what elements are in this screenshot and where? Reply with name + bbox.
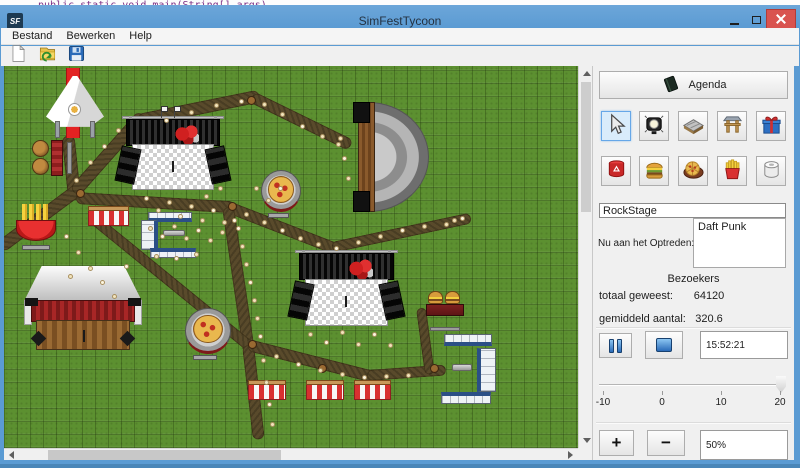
visitor-dot	[74, 178, 79, 183]
visitors-average-label: gemiddeld aantal:	[599, 313, 686, 325]
agenda-book-icon	[661, 74, 681, 97]
fl-flag-part	[161, 106, 168, 112]
agenda-button[interactable]: Agenda	[599, 71, 788, 99]
now-performing-box: Daft Punk	[693, 218, 786, 268]
visitor-dot	[154, 254, 159, 259]
fr-sign-part	[22, 245, 51, 250]
burger-stand-tool-button[interactable]	[639, 156, 669, 186]
window-bottom-border	[0, 460, 800, 468]
waste-bin[interactable]	[248, 340, 257, 349]
svg-part	[721, 158, 744, 181]
visitor-dot	[208, 238, 213, 243]
tp-part	[477, 348, 496, 392]
g-part	[664, 76, 678, 92]
maximize-button[interactable]	[746, 10, 766, 29]
open-file-button[interactable]	[37, 46, 57, 66]
visitor-dot	[262, 102, 267, 107]
visitor-dot	[88, 266, 93, 271]
vertical-scrollbar[interactable]	[578, 66, 592, 448]
pause-button[interactable]	[599, 333, 632, 358]
bg-burger-part	[428, 291, 443, 304]
stage-flag[interactable]	[170, 106, 179, 118]
visitor-dot	[308, 332, 313, 337]
svg-part	[760, 113, 783, 136]
horizontal-scrollbar[interactable]	[4, 448, 578, 460]
new-file-button[interactable]	[8, 46, 28, 66]
am-spk-part	[353, 102, 370, 123]
gift-shop-tool-icon	[760, 113, 783, 139]
toilet-block[interactable]	[441, 334, 497, 404]
pizza-stand-tool-button[interactable]	[678, 156, 708, 186]
kb-keg-part	[32, 158, 49, 175]
visitor-dot	[196, 228, 201, 233]
visitor-dot	[148, 226, 153, 231]
visitor-dot	[340, 372, 345, 377]
pz-sign-part	[268, 213, 289, 218]
visitors-header: Bezoekers	[593, 273, 794, 285]
visitor-dot	[204, 194, 209, 199]
visitor-dot	[200, 218, 205, 223]
stage-name-input[interactable]	[599, 203, 786, 218]
pizza-stand-tool-icon	[682, 158, 705, 184]
fr-bowl-part	[16, 220, 56, 241]
am-spk-part	[353, 191, 370, 212]
visitor-dot	[356, 240, 361, 245]
menu-item-help[interactable]: Help	[122, 29, 159, 43]
visitor-dot	[164, 118, 169, 123]
visitor-dot	[388, 343, 393, 348]
new-file-icon	[9, 44, 28, 68]
ellipse-part	[769, 164, 774, 166]
toilet-tool-button[interactable]	[756, 156, 786, 186]
visitors-total-label: totaal geweest:	[599, 290, 673, 302]
st-mic-part	[345, 296, 347, 307]
sl-stripes-part	[306, 385, 344, 400]
visitor-dot	[220, 230, 225, 235]
visitor-dot	[189, 110, 194, 115]
burger-stand[interactable]	[426, 291, 464, 331]
visitor-dot	[244, 212, 249, 217]
visitor-dot	[280, 228, 285, 233]
st-mic-part	[172, 161, 174, 172]
slider-tickmark	[780, 391, 781, 395]
svg-part	[682, 158, 705, 181]
tp-part	[444, 334, 492, 346]
spotlight-tool-button[interactable]	[639, 111, 669, 141]
spotlight-tool-icon	[643, 113, 666, 139]
title-bar[interactable]: SF SimFestTycoon	[0, 5, 800, 28]
rect-part	[646, 168, 661, 170]
striped-stall[interactable]	[88, 206, 129, 226]
st-drums-part	[175, 124, 199, 144]
visitor-dot	[88, 160, 93, 165]
visitor-dot	[324, 340, 329, 345]
path-part	[646, 163, 661, 167]
path-part	[609, 163, 623, 176]
visitor-dot	[68, 274, 73, 279]
visitors-average-value: 320.6	[679, 313, 739, 325]
visitor-dot	[452, 218, 457, 223]
kb-bench-part	[67, 142, 72, 174]
visitor-dot	[255, 316, 260, 321]
visitor-dot	[320, 134, 325, 139]
sl-stripes-part	[88, 211, 129, 226]
pz-sign-part	[193, 355, 217, 360]
visitor-dot	[444, 222, 449, 227]
stop-button[interactable]	[645, 331, 683, 359]
close-button[interactable]	[766, 9, 796, 29]
striped-stall[interactable]	[354, 380, 391, 400]
stage-platform-tool-button[interactable]	[678, 111, 708, 141]
waste-bin[interactable]	[430, 364, 439, 373]
visitor-dot	[346, 176, 351, 181]
kb-keg-part	[32, 140, 49, 157]
visitor-dot	[254, 186, 259, 191]
pizza-stand[interactable]	[185, 308, 231, 360]
polygon-part	[723, 117, 740, 121]
vertical-scrollbar-thumb[interactable]	[581, 82, 591, 212]
barn-stage[interactable]	[24, 266, 142, 350]
zoom-out-button[interactable]: −	[647, 430, 685, 456]
scroll-left-arrow-icon[interactable]	[9, 451, 14, 459]
menu-item-bestand[interactable]: Bestand	[5, 29, 59, 43]
burger-stand-tool-icon	[643, 158, 666, 184]
svg-part	[67, 44, 86, 63]
visitor-dot	[194, 252, 199, 257]
path-part	[765, 117, 771, 120]
open-file-icon	[38, 44, 57, 68]
svg-part	[605, 113, 628, 136]
close-icon	[776, 14, 786, 24]
rect-part	[724, 124, 739, 126]
circle-part	[649, 120, 658, 129]
tp-part	[141, 220, 158, 250]
visitor-dot	[336, 142, 341, 147]
visitor-dot	[384, 374, 389, 379]
st-curtain-part	[126, 119, 221, 146]
tn-leg-part	[55, 121, 60, 138]
visitor-dot	[252, 298, 257, 303]
toolbar	[1, 46, 799, 66]
svg-part	[760, 158, 783, 181]
visitor-dot	[278, 186, 283, 191]
visitor-dot	[342, 156, 347, 161]
rect-part	[770, 120, 773, 133]
visitor-dot	[160, 234, 165, 239]
path-part	[611, 115, 623, 133]
festival-map-viewport[interactable]	[4, 66, 578, 448]
beer-stand[interactable]	[32, 140, 74, 176]
visitor-dot	[116, 128, 121, 133]
visitor-dot	[214, 103, 219, 108]
visitor-dot	[211, 208, 216, 213]
bn-spk-part	[25, 298, 38, 306]
entrance-gate-tool-icon	[721, 113, 744, 139]
speed-slider-thumb[interactable]	[776, 376, 786, 393]
svg-part	[38, 44, 57, 63]
simfest-tycoon-window: public static void main(String[] args) S…	[0, 0, 800, 468]
separator	[596, 327, 791, 329]
visitor-dot	[102, 144, 107, 149]
slider-tickmark	[721, 391, 722, 395]
toilet-tool-icon	[760, 158, 783, 184]
visitor-dot	[124, 264, 129, 269]
sl-stripes-part	[354, 385, 391, 400]
visitor-dot	[270, 422, 275, 427]
kb-bar-part	[51, 140, 63, 176]
slider-tick-label: 0	[659, 397, 665, 408]
pz-pie-part	[193, 315, 222, 344]
visitor-dot	[64, 234, 69, 239]
visitor-dot	[167, 200, 172, 205]
slider-tickmark	[603, 391, 604, 395]
striped-stall[interactable]	[306, 380, 344, 400]
visitor-dot	[318, 368, 323, 373]
time-field[interactable]	[700, 331, 788, 359]
minimize-icon	[730, 23, 739, 25]
bn-spk-part	[128, 298, 141, 306]
bg-burger-part	[445, 291, 460, 304]
save-file-icon	[67, 44, 86, 68]
am-dome-part	[368, 102, 429, 212]
entrance-tent[interactable]	[46, 76, 104, 138]
tp-part	[441, 392, 491, 404]
svg-part	[682, 113, 705, 136]
visitor-dot	[422, 224, 427, 229]
stop-icon	[656, 338, 672, 352]
main-stage[interactable]	[118, 116, 228, 194]
scroll-up-arrow-icon[interactable]	[583, 71, 591, 76]
visitor-dot	[261, 358, 266, 363]
entrance-gate-tool-button[interactable]	[717, 111, 747, 141]
fl-flag-part	[174, 106, 181, 112]
slider-tickmark	[662, 391, 663, 395]
bn-roof-part	[24, 266, 142, 301]
menu-item-bewerken[interactable]: Bewerken	[59, 29, 122, 43]
control-panel: Agenda Daft Punk Nu aan het Optreden: Be…	[592, 66, 794, 460]
visitor-dot	[296, 362, 301, 367]
tpipe-part	[452, 364, 472, 371]
visitor-dot	[356, 342, 361, 347]
horizontal-scrollbar-thumb[interactable]	[48, 450, 281, 460]
menu-bar: BestandBewerkenHelp	[1, 28, 799, 45]
visitor-dot	[174, 256, 179, 261]
zoom-in-button[interactable]: +	[599, 430, 634, 456]
svg-part	[605, 158, 628, 181]
visitor-dot	[338, 136, 343, 141]
visitor-dot	[232, 218, 237, 223]
agenda-label: Agenda	[689, 79, 727, 91]
rect-part	[71, 55, 81, 61]
visitor-dot	[406, 373, 411, 378]
path-part	[20, 46, 24, 50]
visitor-dot	[239, 99, 244, 104]
scroll-down-arrow-icon[interactable]	[583, 438, 591, 443]
rect-part	[735, 121, 737, 133]
tn-leg-part	[90, 121, 95, 138]
visitor-dot	[76, 250, 81, 255]
visitor-dot	[172, 224, 177, 229]
visitor-dot	[460, 216, 465, 221]
st-curtain-part	[299, 253, 394, 280]
polygon-part	[725, 169, 738, 179]
visitor-dot	[378, 234, 383, 239]
path-part	[771, 117, 777, 120]
visitor-dot	[112, 294, 117, 299]
speed-slider-track[interactable]	[599, 384, 786, 386]
bg-table-part	[426, 304, 464, 316]
fries-stand[interactable]	[16, 204, 56, 250]
visitor-dot	[258, 334, 263, 339]
tn-roof-part	[46, 76, 104, 127]
visitor-dot	[189, 204, 194, 209]
cursor-tool-button[interactable]	[601, 111, 631, 141]
stage-platform-tool-icon	[682, 113, 705, 139]
visitor-dot	[300, 124, 305, 129]
pause-icon	[609, 339, 614, 353]
now-performing-label: Nu aan het Optreden:	[598, 238, 694, 249]
fries-stand-tool-button[interactable]	[717, 156, 747, 186]
amphitheater-stage[interactable]	[353, 102, 429, 212]
tpipe-part	[163, 230, 185, 236]
svg-part	[721, 113, 744, 136]
visitor-dot	[362, 375, 367, 380]
slider-tick-label: 10	[715, 397, 726, 408]
punk-stage[interactable]	[291, 250, 402, 330]
waste-bin[interactable]	[76, 189, 85, 198]
trash-can-tool-icon	[605, 158, 628, 184]
svg-part	[661, 74, 681, 94]
svg-part	[643, 113, 666, 136]
zoom-level-field[interactable]	[700, 430, 788, 460]
visitor-dot	[280, 112, 285, 117]
visitor-dot	[156, 208, 161, 213]
save-file-button[interactable]	[66, 46, 86, 66]
visitor-dot	[340, 330, 345, 335]
visitor-dot	[267, 402, 272, 407]
visitor-dot	[274, 354, 279, 359]
visitor-dot	[334, 246, 339, 251]
separator	[596, 422, 791, 424]
visitor-dot	[100, 280, 105, 285]
visitor-dot	[218, 186, 223, 191]
svg-part	[643, 158, 666, 181]
stage-flag[interactable]	[157, 106, 166, 118]
waste-bin[interactable]	[247, 96, 256, 105]
visitor-dot	[144, 196, 149, 201]
rect-part	[76, 48, 78, 52]
bg-bench-part	[430, 327, 460, 331]
visitor-dot	[262, 220, 267, 225]
pause-icon	[617, 339, 622, 353]
visitor-dot	[316, 242, 321, 247]
visitor-dot	[298, 236, 303, 241]
rect-part	[646, 170, 661, 172]
visitor-dot	[248, 280, 253, 285]
visitor-dot	[400, 228, 405, 233]
visitor-dot	[372, 332, 377, 337]
cursor-tool-icon	[605, 113, 628, 139]
sl-stripes-part	[248, 385, 286, 400]
slider-tick-label: 20	[774, 397, 785, 408]
st-drums-part	[349, 258, 373, 279]
visitor-dot	[244, 262, 249, 267]
rect-part	[651, 131, 656, 134]
visitor-dot	[178, 214, 183, 219]
svg-part	[9, 44, 28, 63]
window-title: SimFestTycoon	[0, 14, 800, 28]
path-part	[646, 175, 661, 178]
waste-bin[interactable]	[228, 202, 237, 211]
toilet-block[interactable]	[141, 212, 198, 260]
bn-mic-part	[83, 330, 85, 342]
visitor-dot	[184, 236, 189, 241]
slider-tick-label: -10	[596, 397, 610, 408]
trash-can-tool-button[interactable]	[601, 156, 631, 186]
rect-part	[726, 121, 728, 133]
visitor-dot	[266, 198, 271, 203]
scrollbar-corner	[578, 448, 592, 460]
visitors-total-value: 64120	[679, 290, 739, 302]
visitor-dot	[222, 220, 227, 225]
maximize-icon	[752, 16, 761, 24]
visitor-dot	[236, 226, 241, 231]
gift-shop-tool-button[interactable]	[756, 111, 786, 141]
visitor-dot	[264, 380, 269, 385]
scroll-right-arrow-icon[interactable]	[568, 451, 573, 459]
pizza-stand[interactable]	[261, 170, 301, 218]
rect-part	[664, 76, 678, 92]
visitor-dot	[240, 244, 245, 249]
fries-stand-tool-icon	[721, 158, 744, 184]
minimize-button[interactable]	[724, 10, 744, 29]
